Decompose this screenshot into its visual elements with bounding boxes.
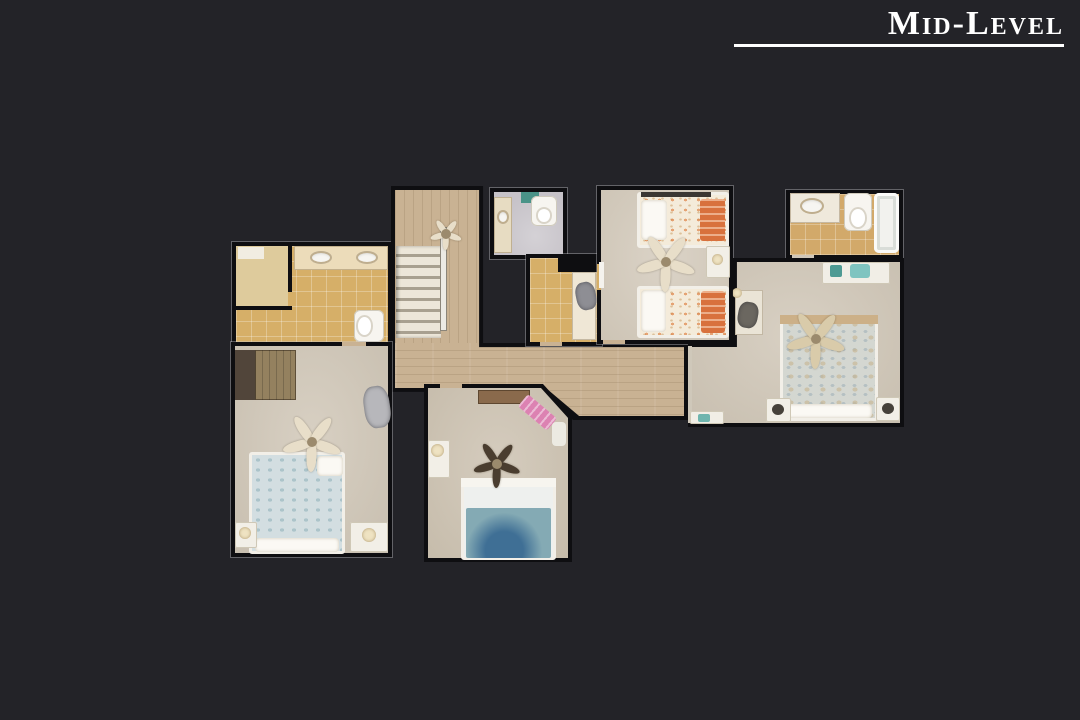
headboard [641, 192, 711, 197]
pillow [786, 404, 872, 418]
toilet-icon [844, 193, 872, 231]
pillow [255, 538, 339, 552]
slide-background: Mid-Level [0, 0, 1080, 720]
doorway [603, 340, 625, 344]
doorway [342, 342, 366, 346]
orange-blanket [701, 291, 725, 333]
bedroom-lower-left [231, 342, 392, 557]
staircase [396, 246, 441, 338]
dresser-side [235, 350, 255, 400]
hamper [552, 422, 566, 446]
doorway [440, 384, 462, 388]
vanity [494, 197, 512, 253]
door-leaf [599, 262, 604, 288]
wall-notch [558, 254, 598, 272]
bedroom-bottom-center [424, 384, 572, 562]
sink-icon [356, 251, 378, 264]
bathroom-top-right [786, 190, 903, 259]
interior-wall [236, 306, 292, 310]
lamp-icon [431, 444, 444, 457]
lamp-icon [772, 404, 784, 415]
orange-blanket [700, 199, 725, 241]
dresser [255, 350, 296, 400]
lamp-icon [362, 528, 376, 542]
sink-icon [800, 198, 824, 214]
toilet-icon [354, 310, 384, 342]
teal-blanket [466, 508, 551, 558]
bedroom-kids [597, 186, 733, 344]
doorway [540, 342, 562, 346]
bathtub-icon [874, 193, 899, 253]
decor-teal [850, 264, 870, 278]
decor-teal [830, 265, 842, 277]
sink-icon [310, 251, 332, 264]
bathroom-top-center [490, 188, 567, 259]
decor-teal [698, 414, 710, 422]
lamp-icon [732, 288, 742, 298]
pillow [641, 200, 667, 240]
pillow [641, 290, 666, 332]
lamp-icon [239, 527, 251, 539]
floorplan-image [0, 0, 1080, 720]
bathroom-top-left [232, 242, 392, 346]
pillow [317, 456, 343, 476]
sink-icon [497, 210, 509, 224]
lamp-icon [882, 403, 894, 414]
headboard [461, 478, 556, 487]
interior-wall [288, 246, 292, 292]
closet-shelf [238, 247, 264, 259]
closet-nook [526, 254, 602, 346]
lamp-icon [712, 254, 723, 265]
toilet-icon [531, 196, 557, 226]
